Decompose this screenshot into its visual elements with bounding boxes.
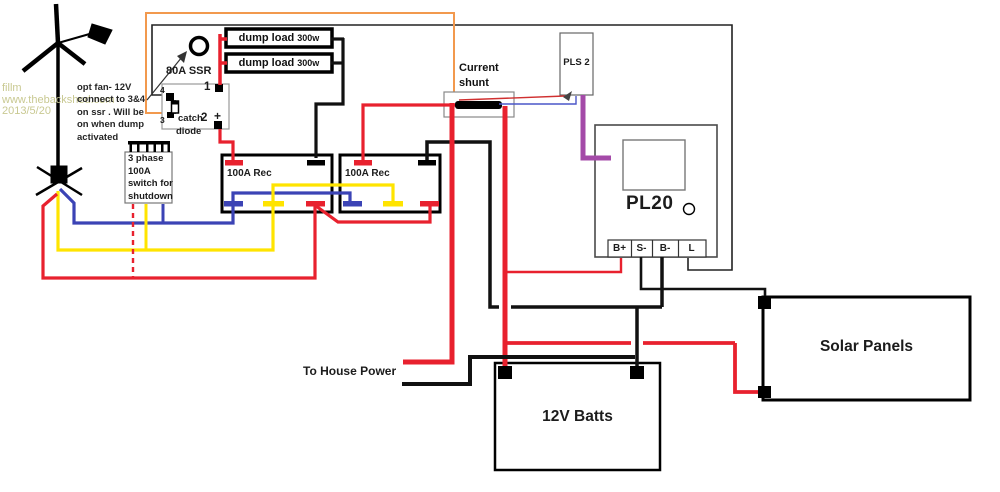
pls2-label: PLS 2 <box>560 57 593 68</box>
ssr-terminal2-plus-label: + <box>214 109 221 123</box>
shutdown-switch-label: 3 phase 100A switch for shutdown <box>128 153 173 204</box>
pl20-terminal-sminus-label: S- <box>631 241 652 256</box>
catch-diode-label: diode <box>176 126 201 137</box>
pl20-box <box>595 125 717 257</box>
dump-load-power: 300w <box>297 58 319 68</box>
pl20-terminal-l-label: L <box>678 241 705 256</box>
pl20-terminal-bminus-label: B- <box>652 241 678 256</box>
house-power-label: To House Power <box>303 364 396 378</box>
ssr-terminal4-label: 4 <box>160 85 165 95</box>
battery-label: 12V Batts <box>495 408 660 426</box>
rectifier-2-label: 100A Rec <box>345 168 390 179</box>
catch-diode-label: catch <box>178 113 203 124</box>
fan-note-line: on ssr . Will be <box>77 107 145 119</box>
pl20-display <box>623 140 685 190</box>
pl20-label: PL20 <box>626 193 673 215</box>
switch-drop-wires <box>133 204 163 277</box>
ssr-terminal3-label: 3 <box>160 115 165 125</box>
dump-load-name: dump load <box>239 57 295 69</box>
switch-label-line: 3 phase <box>128 153 173 166</box>
shunt-label-line: Current <box>459 61 499 76</box>
dump-load-name: dump load <box>239 32 295 44</box>
pl20-terminal-bplus-label: B+ <box>608 241 631 256</box>
shunt-bar-icon <box>455 101 502 109</box>
switch-label-line: switch for <box>128 178 173 191</box>
fan-note: opt fan- 12V connect to 3&4 on ssr . Wil… <box>77 82 145 144</box>
dump-load-power: 300w <box>297 33 319 43</box>
wiring-diagram: fillm www.thebackshed.com 2013/5/20 opt … <box>0 0 1000 492</box>
dump-load-2-label: dump load 300w <box>226 54 332 72</box>
fan-note-line: activated <box>77 132 145 144</box>
current-shunt-label: Current shunt <box>459 61 499 90</box>
pl20-indicator-icon <box>684 204 695 215</box>
switch-label-line: 100A <box>128 166 173 179</box>
rectifier2-positive-wire <box>363 105 456 160</box>
fan-circle-icon <box>191 38 208 55</box>
solar-panels-label: Solar Panels <box>763 338 970 356</box>
fan-note-line: on when dump <box>77 119 145 131</box>
switch-label-line: shutdown <box>128 191 173 204</box>
fan-note-line: connect to 3&4 <box>77 94 145 106</box>
solar-negative-wire <box>641 257 765 299</box>
catch-diode-icon <box>172 100 179 114</box>
ssr-terminal1-label: 1 <box>204 81 210 93</box>
ssr-title: 80A SSR <box>166 65 211 77</box>
rectifier-1-label: 100A Rec <box>227 168 272 179</box>
fan-note-line: opt fan- 12V <box>77 82 145 94</box>
dump-load-1-label: dump load 300w <box>226 29 332 47</box>
shunt-label-line: shunt <box>459 76 499 91</box>
